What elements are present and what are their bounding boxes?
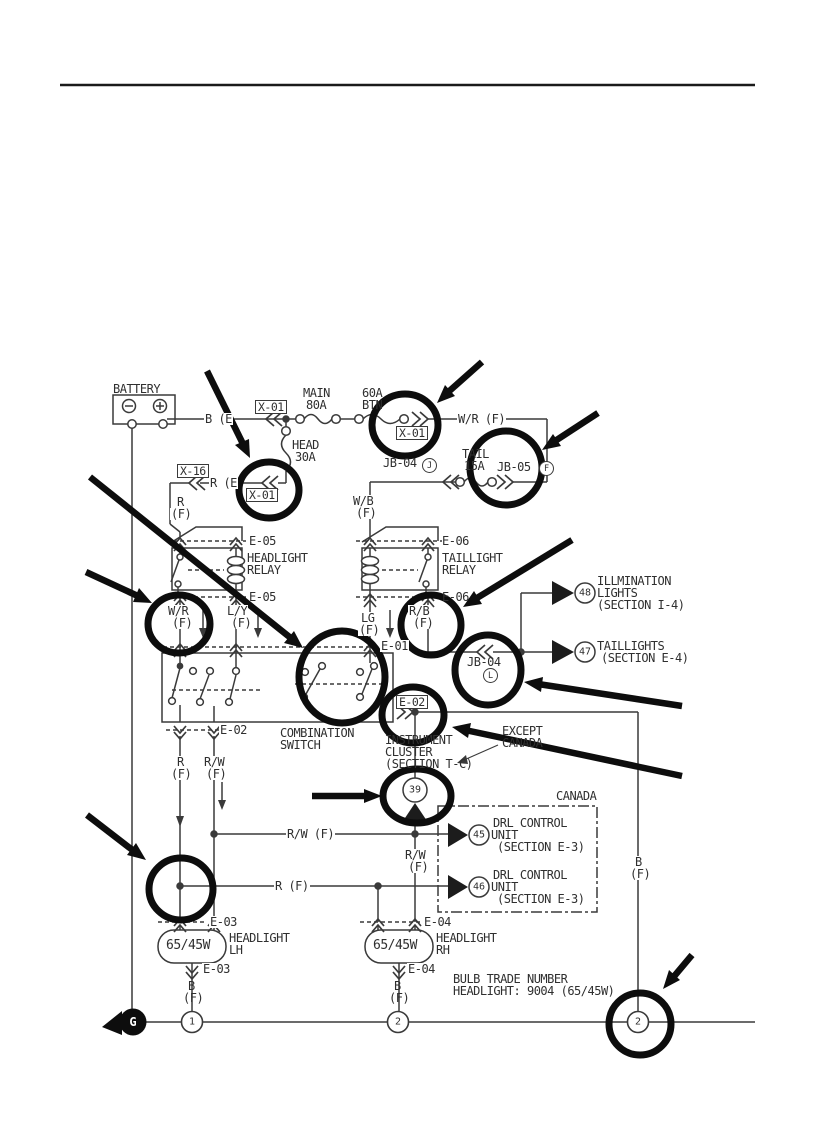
battery-label: BATTERY [113,383,160,395]
ground-ref-2-right: 2 [635,1017,641,1028]
headlight-relay-symbol [171,527,245,597]
fuse-main-rating: 80A [306,399,326,411]
combination-switch-label-2: SWITCH [280,739,320,751]
wire-label-b-e: B (E [204,413,233,425]
connector-x01-right: X-01 [396,426,428,440]
connector-e05-bot: E-05 [249,591,276,603]
wire-label-b-lh-f: (F) [183,992,203,1004]
wire-label-r-e: R (E [209,477,238,489]
dest-47-label-2: (SECTION E-4) [601,652,688,664]
b-f-right-wire [412,709,638,1012]
connector-x16: X-16 [177,464,209,478]
fuse-head-rating: 30A [295,451,315,463]
connector-x01-mid: X-01 [246,488,278,502]
fuse-tail-rating: 15A [464,460,484,472]
connector-e05-top: E-05 [249,535,276,547]
bulb-lh-label-2: LH [229,944,242,956]
connector-jb05-letter: F [539,461,554,476]
ground-point-symbol [102,1009,147,1036]
connector-e03-top: E-03 [209,916,238,928]
connector-jb04-mid: JB-04 [467,656,501,668]
connector-jb04-top: JB-04 [383,457,417,469]
ground-bus [140,1012,755,1033]
wire-label-wb-f: (F) [355,507,377,519]
canada-label: CANADA [556,790,596,802]
dest-45-number: 45 [473,830,485,841]
dest-45-label-3: (SECTION E-3) [497,841,584,853]
wire-label-wr-top: W/R (F) [457,413,506,425]
combination-switch-box [162,653,393,722]
dest-47-number: 47 [579,647,591,658]
bulb-note-line-2: HEADLIGHT: 9004 (65/45W) [453,985,614,997]
dest-39-number: 39 [409,785,421,796]
diagram-linework [60,85,755,1036]
ground-point-letter: G [129,1015,136,1029]
connector-e02-right: E-02 [396,695,428,709]
headlight-relay-label-2: RELAY [247,564,281,576]
wire-label-r-f: (F) [170,508,192,520]
dest-46-number: 46 [473,882,485,893]
wire-label-b-rh-f: (F) [389,992,409,1004]
wire-label-rw-horizontal: R/W (F) [286,828,335,840]
wiring-diagram-page: BATTERY B (E X-01 MAIN 80A 60A BTN X-01 … [0,0,816,1123]
connector-jb05: JB-05 [497,461,531,473]
connector-e06-bot: E-06 [442,591,469,603]
bulb-rh-wattage: 65/45W [373,940,417,952]
wire-label-r-mid-f: (F) [170,768,192,780]
connector-e01: E-01 [380,640,409,652]
connector-e02-left: E-02 [219,724,248,736]
battery-symbol [113,395,175,428]
wire-label-rb-f: (F) [412,617,434,629]
wire-label-wr-f: (F) [171,617,193,629]
except-canada-label-2: CANADA [502,737,542,749]
taillight-relay-symbol [362,527,439,597]
wire-label-r-horizontal: R (F) [274,880,310,892]
fuse-btn-name: BTN [362,399,382,411]
connector-jb04-top-letter: J [422,458,437,473]
cluster-label-3: (SECTION T-C) [385,758,472,770]
wire-label-rw-vert-f: (F) [407,861,429,873]
dest-48-number: 48 [579,588,591,599]
ground-ref-2: 2 [395,1017,401,1028]
connector-e03-bot: E-03 [202,963,231,975]
wire-label-rw-mid-f: (F) [205,768,227,780]
connector-e04-bot: E-04 [407,963,436,975]
taillight-relay-label-2: RELAY [442,564,476,576]
wire-label-b-right-f: (F) [629,868,651,880]
diagram-artwork [0,0,816,1123]
head-fuse-branch [278,421,291,483]
connector-e04-top: E-04 [423,916,452,928]
bulb-lh-wattage: 65/45W [166,940,210,952]
bulb-rh-label-2: RH [436,944,449,956]
connector-jb04-mid-letter: L [483,668,498,683]
wire-label-lg-f: (F) [358,624,380,636]
wire-label-ly-f: (F) [230,617,252,629]
ground-ref-1: 1 [189,1017,195,1028]
connector-x01-top: X-01 [255,400,287,414]
dest-46-label-3: (SECTION E-3) [497,893,584,905]
dest-48-label-3: (SECTION I-4) [597,599,684,611]
connector-e06-top: E-06 [442,535,469,547]
